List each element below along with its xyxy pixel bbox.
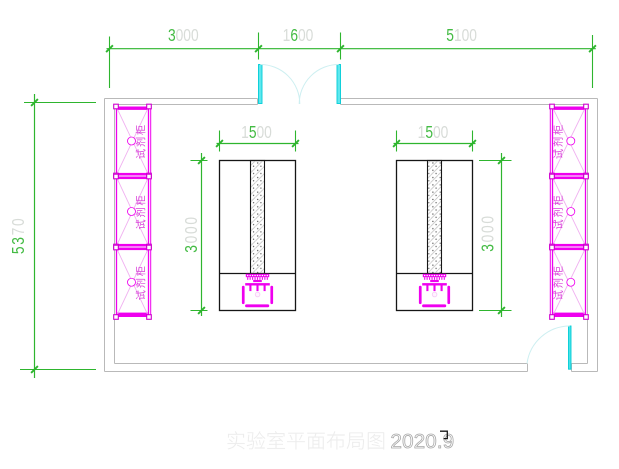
svg-text:3000: 3000 — [168, 27, 199, 46]
svg-text:1500: 1500 — [241, 123, 272, 142]
svg-text:3000: 3000 — [183, 215, 202, 253]
svg-text:试剂柜: 试剂柜 — [552, 264, 565, 300]
svg-text:试剂柜: 试剂柜 — [134, 264, 147, 300]
svg-text:1600: 1600 — [283, 27, 314, 46]
svg-text:5100: 5100 — [446, 26, 477, 45]
svg-text:3000: 3000 — [479, 214, 498, 252]
svg-text:5370: 5370 — [9, 217, 28, 255]
svg-text:试剂柜: 试剂柜 — [552, 123, 565, 159]
svg-text:试剂柜: 试剂柜 — [552, 193, 565, 229]
svg-text:2020.9: 2020.9 — [391, 430, 455, 453]
svg-text:试剂柜: 试剂柜 — [134, 193, 147, 229]
svg-text:1500: 1500 — [418, 123, 449, 142]
svg-text:试剂柜: 试剂柜 — [134, 123, 147, 159]
